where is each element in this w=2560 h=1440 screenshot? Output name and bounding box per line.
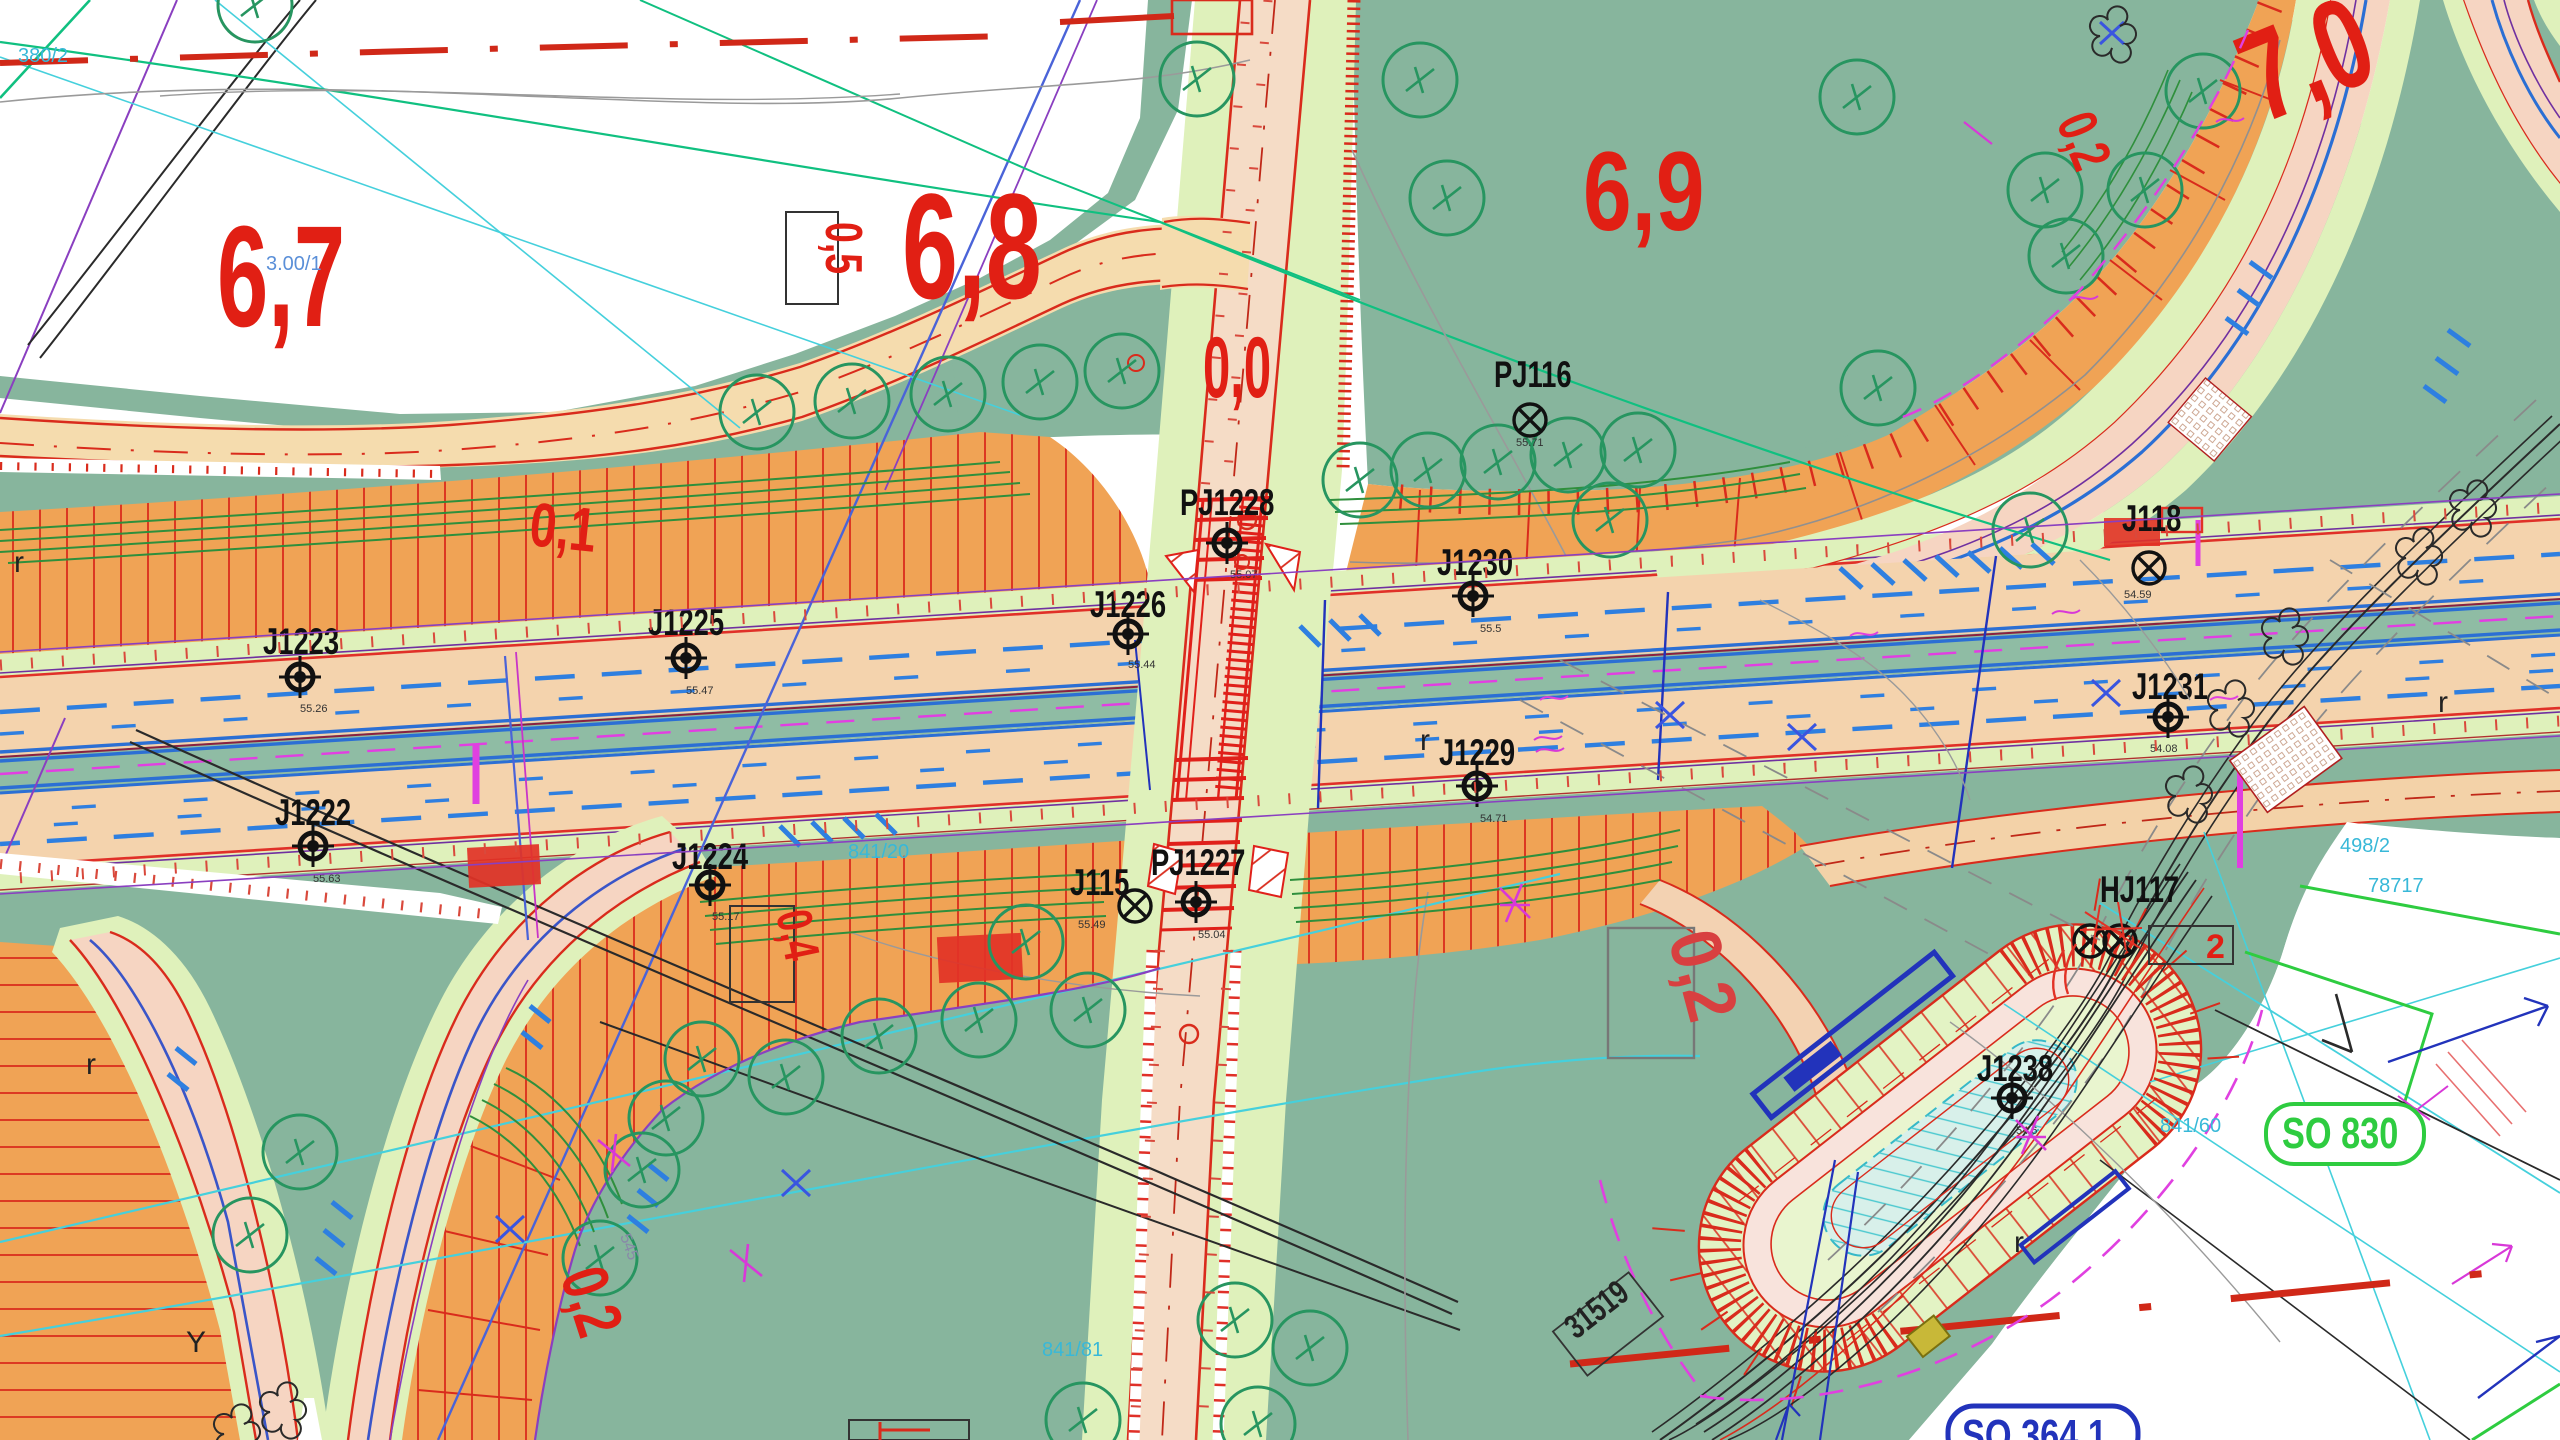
svg-text:J1238: J1238 — [1977, 1048, 2053, 1089]
svg-text:r: r — [14, 546, 24, 579]
svg-text:PJ116: PJ116 — [1494, 354, 1572, 395]
svg-text:PJ1227: PJ1227 — [1151, 842, 1245, 883]
svg-text:841/20: 841/20 — [848, 841, 909, 863]
svg-text:Y: Y — [186, 1326, 206, 1359]
svg-text:55.5: 55.5 — [1480, 623, 1501, 635]
svg-text:54.71: 54.71 — [1480, 813, 1508, 825]
svg-text:J1226: J1226 — [1090, 584, 1166, 625]
svg-text:380/2: 380/2 — [18, 45, 68, 67]
svg-text:55.44: 55.44 — [1128, 659, 1156, 671]
svg-text:841/81: 841/81 — [1042, 1339, 1103, 1361]
svg-text:0,1: 0,1 — [527, 489, 600, 565]
svg-text:54.59: 54.59 — [2124, 589, 2152, 601]
svg-text:J1222: J1222 — [275, 792, 351, 833]
svg-text:r: r — [2014, 1226, 2024, 1259]
svg-text:J1229: J1229 — [1439, 732, 1515, 773]
svg-text:498/2: 498/2 — [2340, 835, 2390, 857]
svg-text:J1231: J1231 — [2132, 666, 2208, 707]
svg-text:r: r — [86, 1048, 96, 1081]
svg-text:r: r — [1420, 724, 1430, 757]
svg-text:J1224: J1224 — [672, 836, 748, 877]
svg-text:PJ1228: PJ1228 — [1180, 482, 1274, 523]
svg-text:841/60: 841/60 — [2160, 1115, 2221, 1137]
svg-text:0,0: 0,0 — [1203, 320, 1271, 416]
svg-text:55.26: 55.26 — [300, 703, 328, 715]
svg-text:2: 2 — [2206, 928, 2225, 966]
svg-text:78717: 78717 — [2368, 875, 2424, 897]
svg-text:r: r — [2438, 686, 2448, 719]
svg-text:0,5: 0,5 — [815, 222, 874, 274]
svg-text:6,7: 6,7 — [217, 196, 345, 357]
svg-text:54.08: 54.08 — [2150, 743, 2178, 755]
svg-text:SO 830: SO 830 — [2282, 1109, 2398, 1158]
svg-text:55.71: 55.71 — [1516, 437, 1544, 449]
svg-text:J1223: J1223 — [263, 621, 339, 662]
svg-text:55.47: 55.47 — [686, 685, 714, 697]
svg-text:6,9: 6,9 — [1583, 130, 1704, 255]
svg-text:6,8: 6,8 — [902, 163, 1042, 331]
svg-text:SO 364 1: SO 364 1 — [1962, 1411, 2107, 1440]
svg-text:J115: J115 — [1070, 862, 1129, 903]
svg-text:55.04: 55.04 — [1198, 929, 1226, 941]
svg-text:HJ117: HJ117 — [2100, 869, 2179, 910]
svg-text:55.49: 55.49 — [1078, 919, 1106, 931]
svg-text:55.17: 55.17 — [712, 911, 740, 923]
svg-text:3.00/1: 3.00/1 — [266, 253, 322, 275]
